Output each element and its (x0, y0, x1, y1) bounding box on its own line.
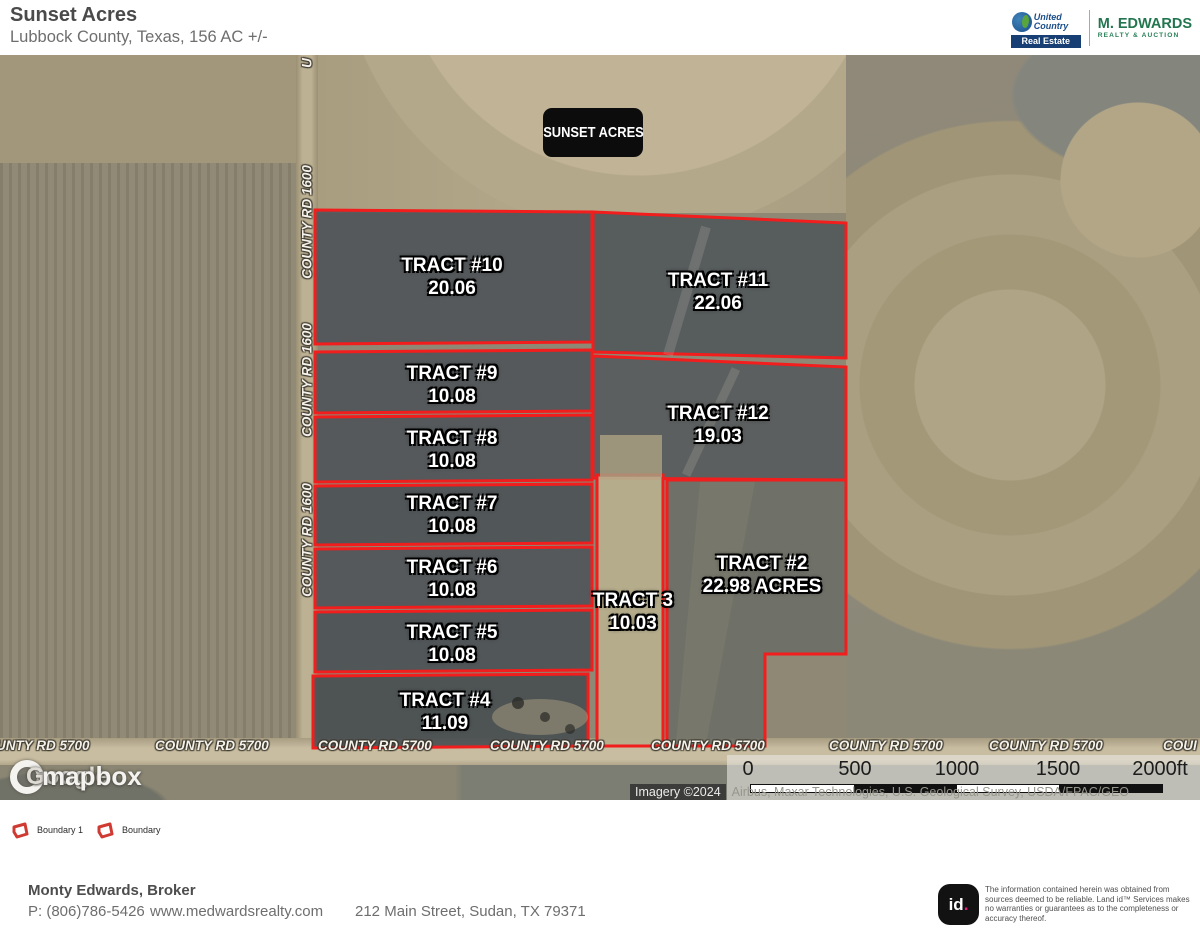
building-dot (512, 697, 524, 709)
broker-address: 212 Main Street, Sudan, TX 79371 (355, 903, 586, 920)
road-label-county-rd-1600: COUNTY RD 1600 (300, 165, 315, 279)
tract-label-2: TRACT #2 22.98 ACRES (703, 552, 822, 598)
boundary-polygon-icon[interactable] (10, 821, 30, 839)
tract-acres: 19.03 (667, 425, 768, 448)
tract-name: TRACT #5 (407, 621, 498, 644)
tract-acres: 20.06 (401, 277, 502, 300)
tract-acres: 10.08 (407, 385, 498, 408)
scalebar-tick: 500 (838, 758, 871, 781)
tract-label-4: TRACT #4 11.09 (400, 689, 491, 735)
united-country-logo: United Country Real Estate (1011, 8, 1081, 48)
brand-logos: United Country Real Estate M. EDWARDS RE… (1011, 6, 1192, 50)
tract-name: TRACT #8 (407, 427, 498, 450)
page-title: Sunset Acres (10, 4, 137, 27)
tract-acres: 10.08 (407, 515, 498, 538)
broker-phone: P: (806)786-5426 (28, 903, 145, 920)
medwards-tagline: REALTY & AUCTION (1098, 32, 1192, 39)
logo-divider (1089, 10, 1090, 46)
tract-label-5: TRACT #5 10.08 (407, 621, 498, 667)
tract-label-3: TRACT 3 10.03 (593, 589, 673, 635)
tract-label-7: TRACT #7 10.08 (407, 492, 498, 538)
legend-item-boundary-1[interactable]: Boundary 1 (37, 825, 83, 835)
tract-acres: 11.09 (400, 712, 491, 735)
mapbox-watermark[interactable]: mapbox (42, 761, 142, 792)
road-label-county-rd-5700: COUNTY RD 5700 (155, 738, 269, 753)
medwards-name: M. EDWARDS (1098, 17, 1192, 32)
attribution-sources: Airbus, Maxar Technologies, U.S. Geologi… (726, 785, 1129, 799)
legend-item-boundary[interactable]: Boundary (122, 825, 161, 835)
broker-website[interactable]: www.medwardsrealty.com (150, 903, 323, 920)
road-label-county-rd-5700: COUNTY RD 5700 (989, 738, 1103, 753)
medwards-logo: M. EDWARDS REALTY & AUCTION (1098, 17, 1192, 39)
boundary-polygon-icon[interactable] (95, 821, 115, 839)
tract-acres: 10.08 (407, 450, 498, 473)
tract-name: TRACT #4 (400, 689, 491, 712)
tract-acres: 10.03 (593, 612, 673, 635)
tract-label-9: TRACT #9 10.08 (407, 362, 498, 408)
property-name-badge-text: SUNSET ACRES (543, 124, 644, 141)
tract-label-11: TRACT #11 22.06 (668, 269, 768, 315)
building-dot (540, 712, 550, 722)
tract-name: TRACT #2 (703, 552, 822, 575)
tract-acres: 22.06 (668, 292, 768, 315)
tract-name: TRACT #11 (668, 269, 768, 292)
tract-name: TRACT 3 (593, 589, 673, 612)
tract-acres: 10.08 (407, 644, 498, 667)
scalebar-tick: 0 (742, 758, 753, 781)
scalebar-tick: 2000ft (1132, 758, 1188, 781)
building-dot (565, 724, 575, 734)
land-id-disclaimer: The information contained herein was obt… (985, 885, 1199, 923)
terrain-tan-wedge (600, 435, 662, 477)
scalebar-tick: 1500 (1036, 758, 1081, 781)
satellite-map[interactable]: SUNSET ACRES TRACT #10 20.06 TRACT #11 2… (0, 55, 1200, 800)
land-id-logo-text: id (949, 895, 964, 915)
united-country-logo-top: United Country (1011, 8, 1081, 35)
tract-name: TRACT #12 (667, 402, 768, 425)
attribution-imagery: Imagery ©2024 (630, 784, 726, 800)
tract-label-10: TRACT #10 20.06 (401, 254, 502, 300)
road-label-county-rd-5700-clipped-right: COUI (1163, 738, 1197, 753)
united-country-wordmark: United Country (1034, 13, 1069, 30)
tract-name: TRACT #9 (407, 362, 498, 385)
tract-acres: 10.08 (407, 579, 498, 602)
globe-leaf-icon (1012, 12, 1032, 32)
country-word: Country (1034, 22, 1069, 31)
property-name-badge: SUNSET ACRES (543, 108, 643, 157)
map-attribution: Imagery ©2024 Airbus, Maxar Technologies… (630, 783, 1200, 800)
road-label-county-rd-1600-clipped: U (300, 58, 315, 68)
road-label-county-rd-5700: COUNTY RD 5700 (829, 738, 943, 753)
land-id-logo: id. (938, 884, 979, 925)
scalebar-tick: 1000 (935, 758, 980, 781)
real-estate-bar: Real Estate (1011, 35, 1081, 48)
tract-label-6: TRACT #6 10.08 (407, 556, 498, 602)
tract-name: TRACT #10 (401, 254, 502, 277)
tract-label-12: TRACT #12 19.03 (667, 402, 768, 448)
tract-name: TRACT #7 (407, 492, 498, 515)
land-id-logo-dot: . (964, 895, 969, 915)
tract-name: TRACT #6 (407, 556, 498, 579)
tract-acres: 22.98 ACRES (703, 575, 822, 598)
road-label-county-rd-5700: COUNTY RD 5700 (318, 738, 432, 753)
page-subtitle: Lubbock County, Texas, 156 AC +/- (10, 28, 268, 47)
road-label-county-rd-1600: COUNTY RD 1600 (300, 323, 315, 437)
road-label-county-rd-1600: COUNTY RD 1600 (300, 483, 315, 597)
tract-boundaries (0, 55, 1200, 800)
tract-label-8: TRACT #8 10.08 (407, 427, 498, 473)
flyer-page: Sunset Acres Lubbock County, Texas, 156 … (0, 0, 1200, 928)
road-label-county-rd-5700: COUNTY RD 5700 (490, 738, 604, 753)
road-label-county-rd-5700-clipped-left: UNTY RD 5700 (0, 738, 90, 753)
road-label-county-rd-5700: COUNTY RD 5700 (651, 738, 765, 753)
broker-name: Monty Edwards, Broker (28, 882, 196, 899)
header: Sunset Acres Lubbock County, Texas, 156 … (0, 0, 1200, 55)
